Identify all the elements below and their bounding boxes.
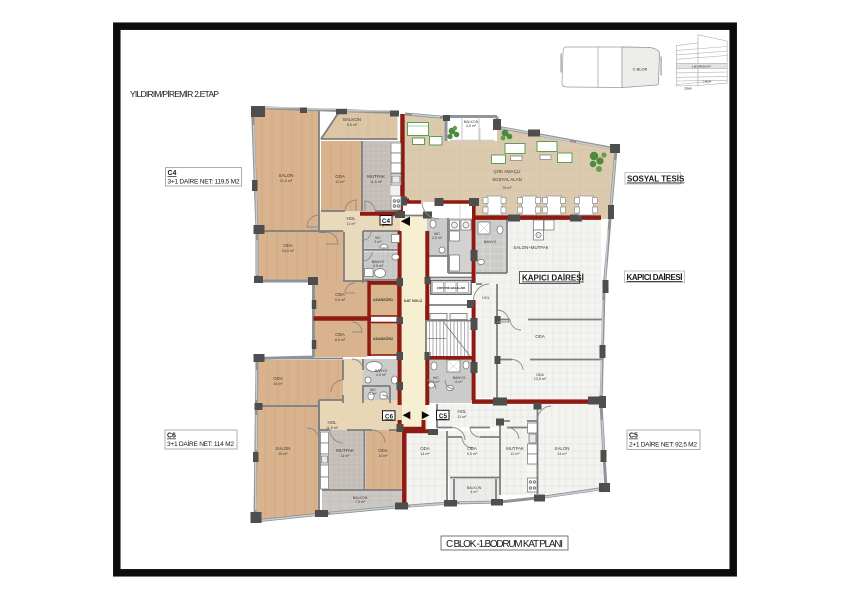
svg-text:BANYO: BANYO — [484, 240, 497, 244]
svg-text:SALON: SALON — [279, 173, 294, 178]
svg-text:MUTFAK: MUTFAK — [336, 448, 354, 453]
svg-text:2+1 DAİRE NET: 92,5 M2: 2+1 DAİRE NET: 92,5 M2 — [629, 440, 697, 449]
svg-text:ODA: ODA — [378, 448, 388, 453]
svg-text:4,5 m²: 4,5 m² — [466, 124, 477, 128]
svg-text:8,5 m²: 8,5 m² — [335, 338, 346, 342]
svg-text:KAT HOLÜ: KAT HOLÜ — [404, 298, 423, 303]
svg-text:ODA: ODA — [335, 174, 345, 179]
svg-text:SALON+MUTFAK: SALON+MUTFAK — [513, 245, 548, 250]
svg-text:12 m²: 12 m² — [335, 180, 345, 184]
svg-text:C BLOK: C BLOK — [633, 67, 648, 72]
svg-text:ODA: ODA — [535, 334, 545, 339]
svg-text:11 m²: 11 m² — [458, 415, 468, 419]
svg-text:HOL: HOL — [346, 216, 356, 221]
svg-text:YILDIRIM/PİREMİR 2.ETAP: YILDIRIM/PİREMİR 2.ETAP — [130, 89, 219, 99]
svg-text:7,5 m²: 7,5 m² — [355, 500, 366, 504]
svg-text:C4: C4 — [382, 218, 391, 225]
svg-text:76 m²: 76 m² — [502, 186, 512, 190]
svg-text:C BLOK -1.BODRUM KAT PLANI: C BLOK -1.BODRUM KAT PLANI — [446, 539, 563, 550]
svg-text:13,5 m²: 13,5 m² — [534, 377, 547, 381]
svg-text:11 m²: 11 m² — [341, 454, 351, 458]
svg-text:9,5 m²: 9,5 m² — [467, 452, 478, 456]
svg-text:SALON: SALON — [555, 446, 570, 451]
svg-text:MUTFAK: MUTFAK — [506, 446, 524, 451]
svg-text:HOL: HOL — [327, 420, 337, 425]
svg-text:4,5 m²: 4,5 m² — [376, 373, 387, 377]
svg-text:C BLOK: C BLOK — [703, 81, 712, 84]
svg-text:3 m²: 3 m² — [369, 392, 377, 396]
svg-text:BALKON: BALKON — [343, 117, 361, 122]
svg-text:SOSYAL ALAN: SOSYAL ALAN — [492, 177, 522, 182]
svg-text:9,5 m²: 9,5 m² — [347, 123, 358, 127]
svg-text:C6: C6 — [385, 413, 394, 420]
svg-text:3 m²: 3 m² — [432, 380, 440, 384]
svg-text:11 m²: 11 m² — [347, 222, 357, 226]
svg-text:3+1 DAİRE NET: 119,5 M2: 3+1 DAİRE NET: 119,5 M2 — [168, 177, 240, 186]
svg-text:HOL: HOL — [457, 409, 467, 414]
svg-text:4 m²: 4 m² — [470, 490, 478, 494]
svg-text:ODA: ODA — [335, 292, 345, 297]
svg-text:2,5 m²: 2,5 m² — [432, 236, 443, 240]
svg-text:KAPICI DAİRESİ: KAPICI DAİRESİ — [627, 273, 683, 282]
svg-text:24 m²: 24 m² — [557, 452, 567, 456]
svg-text:3 m²: 3 m² — [374, 240, 382, 244]
svg-text:SALON: SALON — [276, 446, 291, 451]
svg-text:ÇÖP ATIK BACALARI: ÇÖP ATIK BACALARI — [437, 285, 466, 290]
svg-text:HOL: HOL — [482, 296, 489, 300]
svg-text:ZEMİN: ZEMİN — [684, 88, 692, 91]
svg-text:10 m²: 10 m² — [378, 454, 388, 458]
svg-text:C6: C6 — [167, 433, 176, 440]
svg-text:MUTFAK: MUTFAK — [367, 174, 385, 179]
svg-text:ASANSÖR2: ASANSÖR2 — [373, 336, 393, 341]
svg-text:ÇOK AMAÇLI: ÇOK AMAÇLI — [494, 169, 521, 174]
svg-text:14 m²: 14 m² — [420, 452, 430, 456]
svg-text:11,5 m²: 11,5 m² — [326, 426, 339, 430]
svg-text:ODA: ODA — [283, 243, 293, 248]
svg-text:ASANSÖR1: ASANSÖR1 — [373, 297, 393, 302]
svg-text:12 m²: 12 m² — [510, 452, 520, 456]
svg-text:11,5 m²: 11,5 m² — [370, 180, 383, 184]
svg-text:-1.BODRUM KAT: -1.BODRUM KAT — [691, 65, 712, 69]
svg-text:16 m²: 16 m² — [273, 382, 283, 386]
svg-text:ODA: ODA — [273, 376, 283, 381]
svg-text:ODA: ODA — [467, 446, 477, 451]
svg-text:C5: C5 — [629, 433, 638, 440]
svg-text:6 m²: 6 m² — [455, 380, 463, 384]
svg-text:ODA: ODA — [335, 332, 345, 337]
svg-text:ODA: ODA — [420, 446, 430, 451]
svg-text:3+1 DAİRE NET: 114 M2: 3+1 DAİRE NET: 114 M2 — [167, 439, 234, 448]
svg-text:C5: C5 — [439, 413, 448, 420]
svg-text:4,5 m²: 4,5 m² — [373, 264, 384, 268]
svg-text:21,5 m²: 21,5 m² — [280, 179, 293, 183]
svg-text:KAPICI DAİRESİ: KAPICI DAİRESİ — [522, 274, 584, 283]
svg-text:9,5 m²: 9,5 m² — [335, 298, 346, 302]
svg-text:20 m²: 20 m² — [278, 452, 288, 456]
svg-text:C4: C4 — [168, 170, 177, 177]
svg-text:16,5 m²: 16,5 m² — [282, 249, 295, 253]
svg-text:SOSYAL TESİS: SOSYAL TESİS — [627, 175, 685, 184]
